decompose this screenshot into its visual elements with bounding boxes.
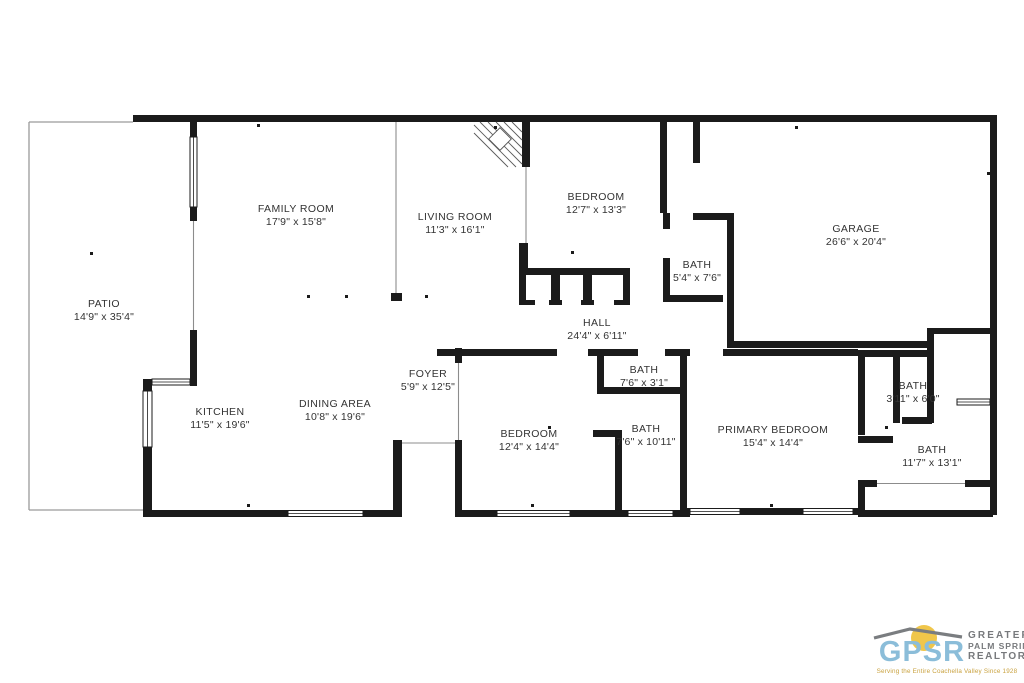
fireplace-hatch	[474, 122, 522, 167]
room-label-primary-bedroom: PRIMARY BEDROOM 15'4" x 14'4"	[718, 424, 829, 450]
room-label-kitchen: KITCHEN 11'5" x 19'6"	[190, 406, 249, 432]
walls	[133, 115, 997, 517]
gpsr-acronym: GPSR	[876, 636, 968, 669]
gpsr-logo: GPSR GREATER PALM SPRINGS REALTORS® Serv…	[872, 622, 1022, 678]
room-label-family-room: FAMILY ROOM 17'9" x 15'8"	[258, 203, 334, 229]
room-label-living-room: LIVING ROOM 11'3" x 16'1"	[418, 211, 492, 237]
room-label-garage: GARAGE 26'6" x 20'4"	[826, 223, 886, 249]
room-label-bedroom-top: BEDROOM 12'7" x 13'3"	[566, 191, 626, 217]
room-label-bedroom-bottom: BEDROOM 12'4" x 14'4"	[499, 428, 559, 454]
floor-plan	[0, 0, 1024, 683]
logo-tagline: Serving the Entire Coachella Valley Sinc…	[872, 668, 1022, 675]
room-label-bath-7-6-10-11: BATH 7'6" x 10'11"	[616, 423, 675, 449]
room-label-foyer: FOYER 5'9" x 12'5"	[401, 368, 455, 394]
room-label-dining-area: DINING AREA 10'8" x 19'6"	[299, 398, 371, 424]
room-label-bath-small: BATH 3'11" x 6'0"	[886, 380, 939, 406]
room-label-bath-5-4: BATH 5'4" x 7'6"	[673, 259, 721, 285]
room-label-bath-7-6-3-1: BATH 7'6" x 3'1"	[620, 364, 668, 390]
room-label-hall: HALL 24'4" x 6'11"	[567, 317, 626, 343]
opening-lines	[194, 122, 966, 484]
room-label-bath-11-7: BATH 11'7" x 13'1"	[902, 444, 961, 470]
room-label-patio: PATIO 14'9" x 35'4"	[74, 298, 134, 324]
org-name: GREATER PALM SPRINGS REALTORS®	[968, 630, 1024, 662]
